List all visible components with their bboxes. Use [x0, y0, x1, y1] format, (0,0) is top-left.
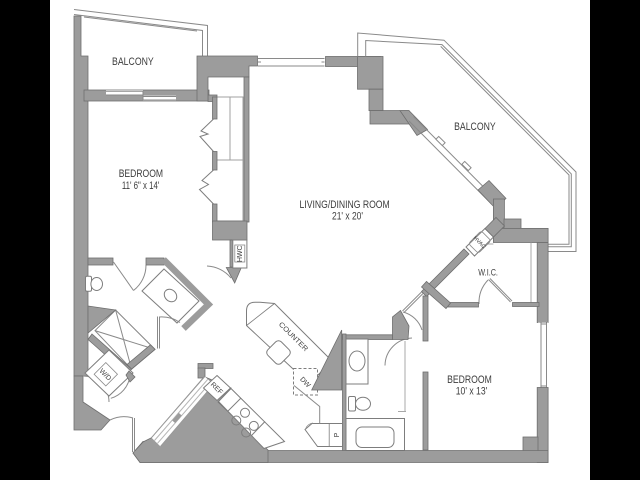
svg-text:P: P	[334, 432, 341, 437]
svg-text:BALCONY: BALCONY	[454, 121, 496, 133]
svg-text:HWC: HWC	[237, 245, 244, 262]
svg-text:10' x 13': 10' x 13'	[456, 385, 488, 397]
svg-text:BALCONY: BALCONY	[112, 56, 154, 68]
svg-text:BEDROOM: BEDROOM	[447, 374, 492, 386]
svg-text:11' 6" x 14': 11' 6" x 14'	[122, 180, 160, 192]
svg-text:W.I.C.: W.I.C.	[478, 268, 498, 278]
svg-text:21' x 20': 21' x 20'	[332, 211, 363, 223]
svg-text:LIVING/DINING ROOM: LIVING/DINING ROOM	[300, 199, 390, 211]
svg-text:BEDROOM: BEDROOM	[119, 168, 163, 180]
